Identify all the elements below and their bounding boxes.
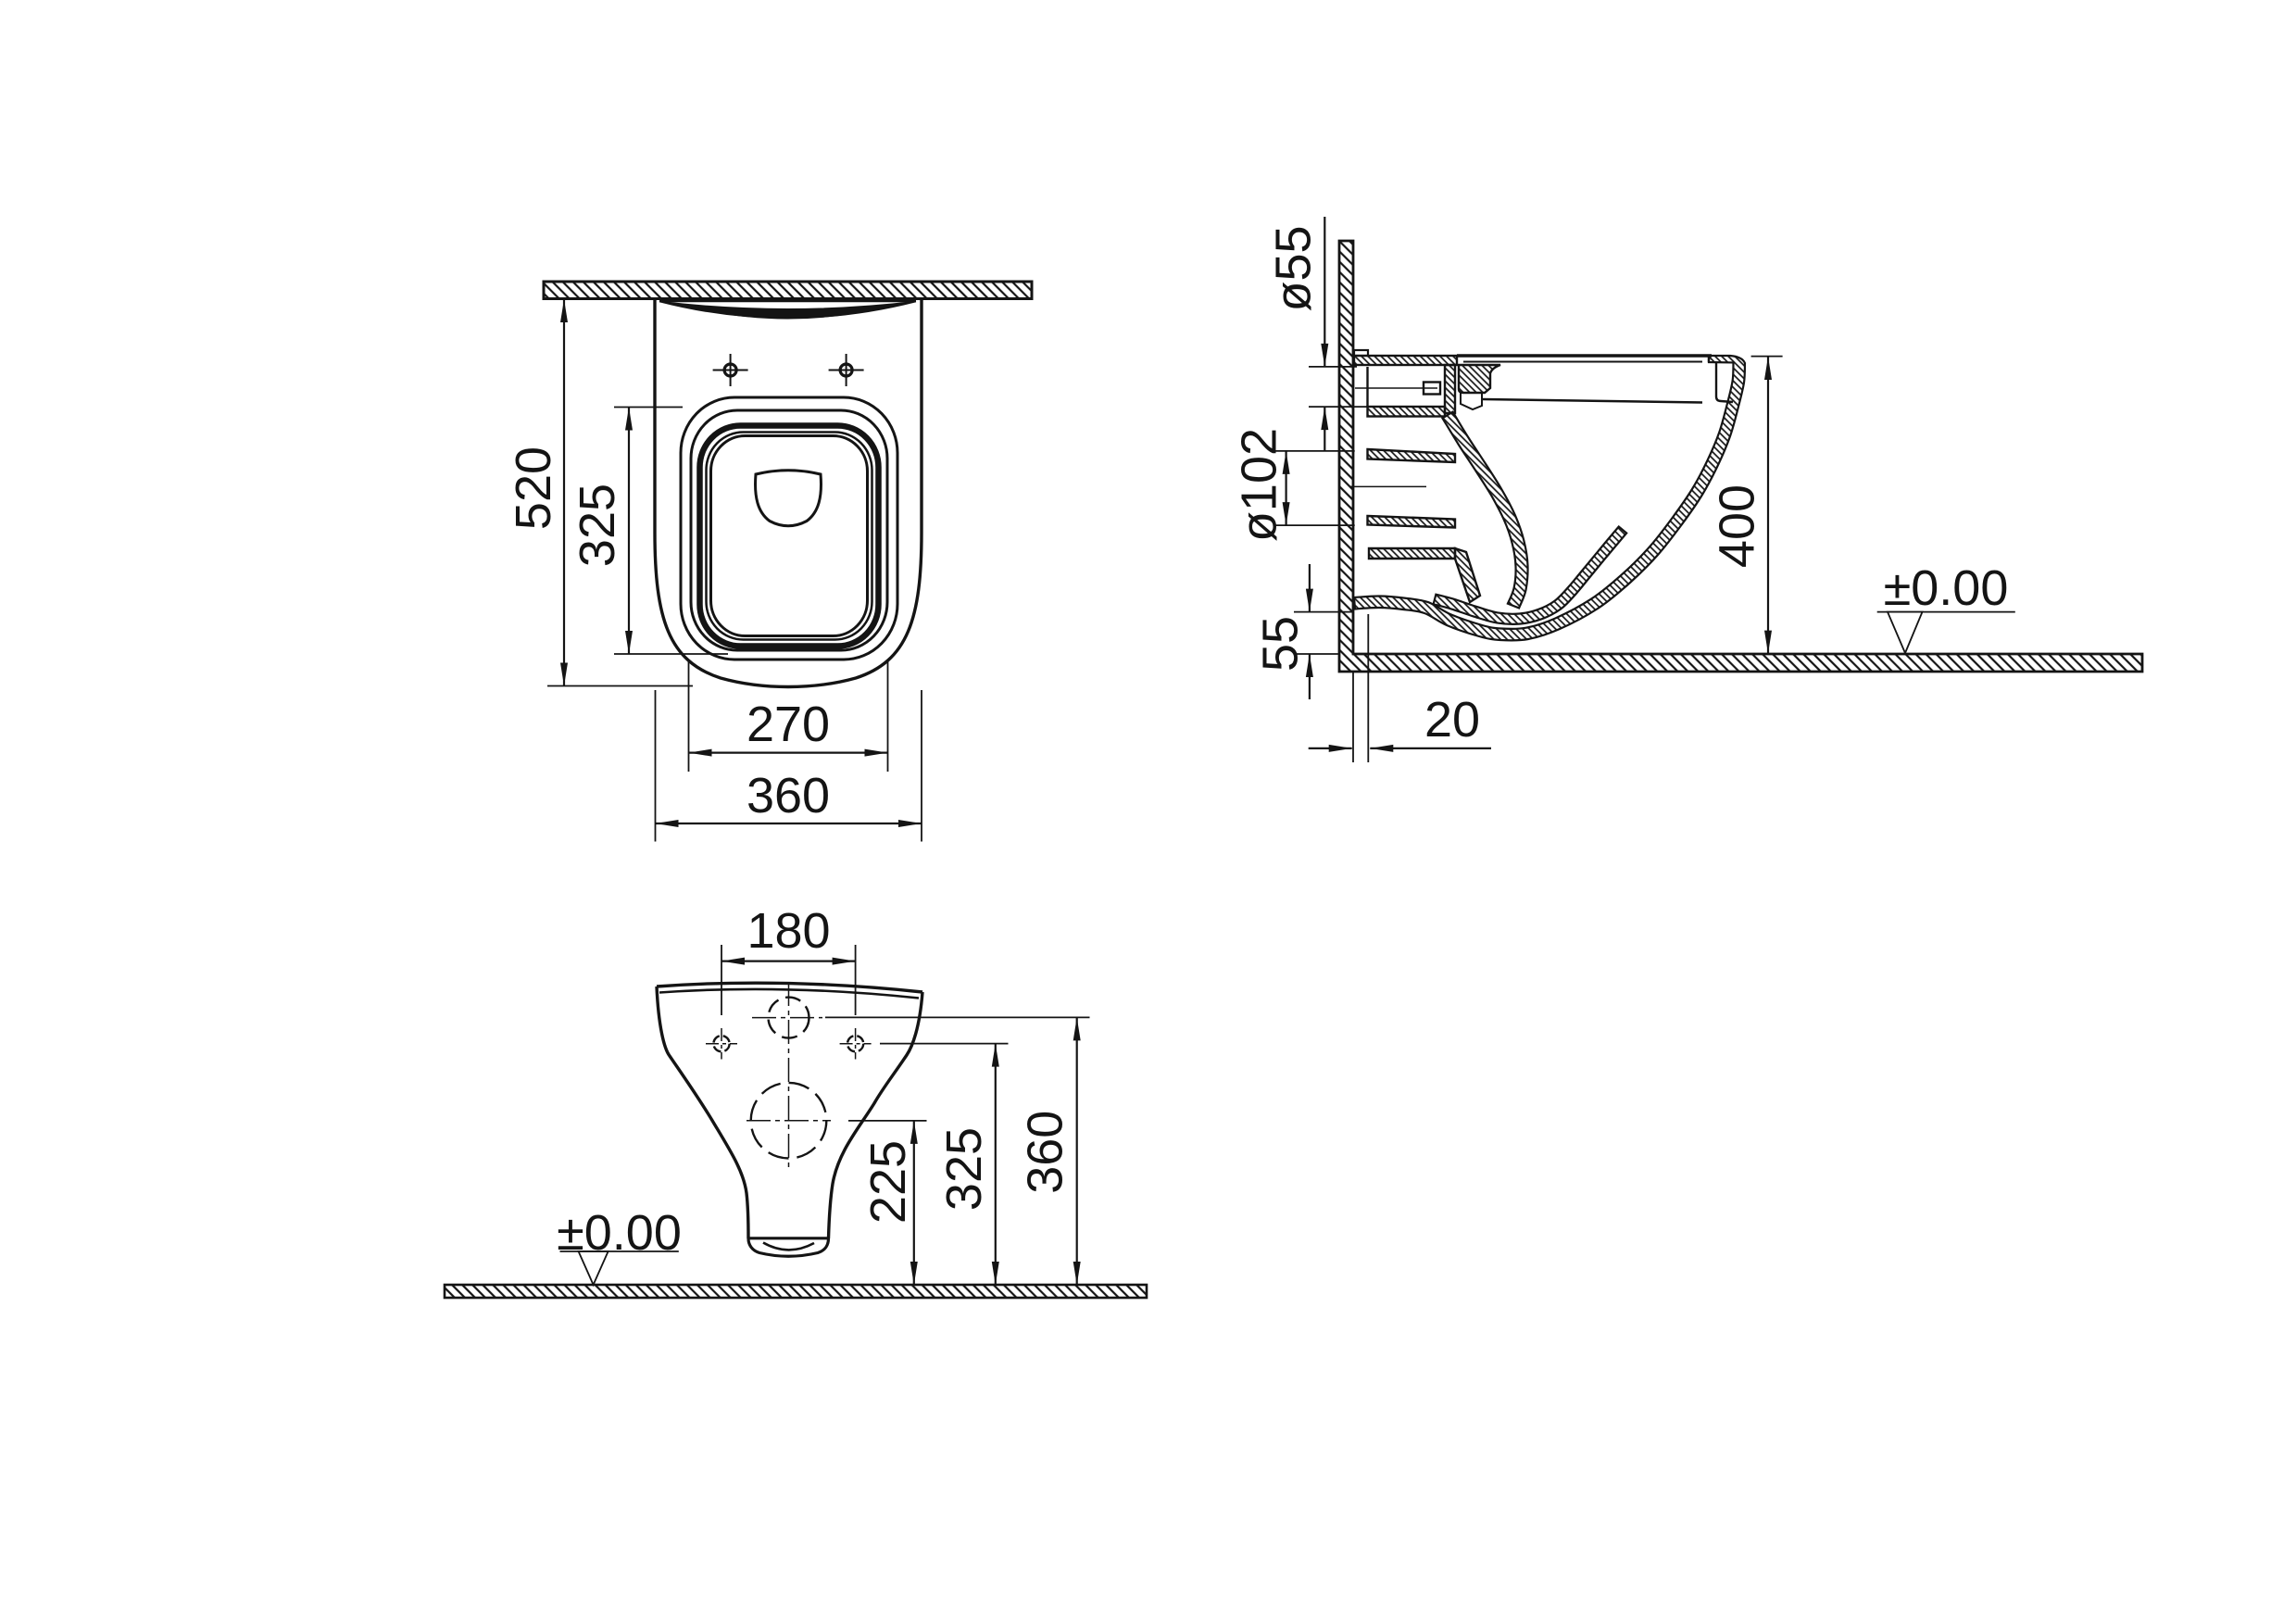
svg-text:225: 225 <box>860 1140 916 1224</box>
svg-text:±0.00: ±0.00 <box>1884 560 2009 616</box>
svg-text:±0.00: ±0.00 <box>557 1205 682 1261</box>
svg-text:400: 400 <box>1710 484 1765 568</box>
svg-text:360: 360 <box>747 768 830 823</box>
svg-text:20: 20 <box>1424 692 1480 748</box>
svg-text:180: 180 <box>747 903 830 959</box>
svg-text:55: 55 <box>1253 616 1309 672</box>
svg-text:325: 325 <box>570 484 625 567</box>
svg-text:360: 360 <box>1018 1111 1073 1194</box>
svg-text:ø102: ø102 <box>1231 428 1286 542</box>
svg-text:ø55: ø55 <box>1265 225 1321 311</box>
svg-text:520: 520 <box>506 446 561 530</box>
svg-text:270: 270 <box>747 697 830 752</box>
svg-text:325: 325 <box>936 1127 992 1211</box>
